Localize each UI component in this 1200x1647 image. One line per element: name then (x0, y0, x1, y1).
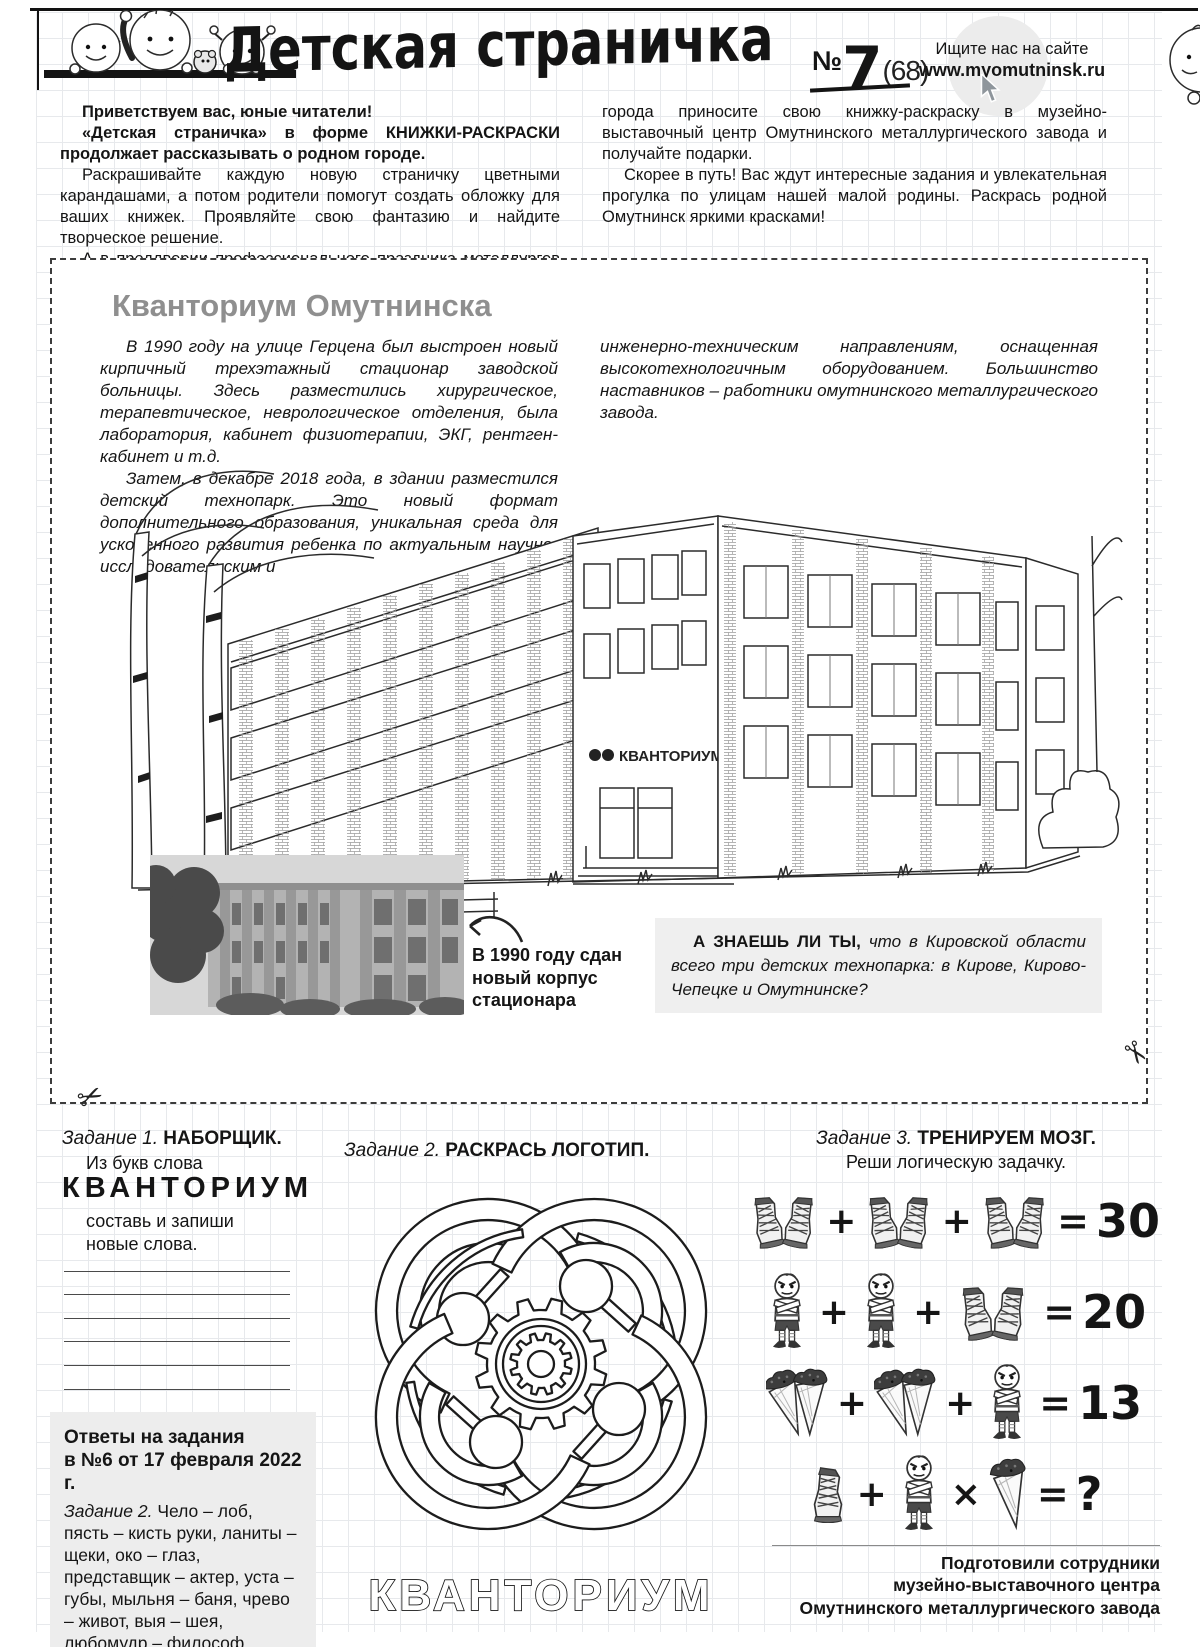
sneaker-icon (806, 1465, 850, 1523)
task1-intro1: Из букв слова (86, 1153, 203, 1174)
writing-line[interactable] (64, 1295, 290, 1319)
did-you-know-box: А ЗНАЕШЬ ЛИ ТЫ, что в Кировской области … (655, 918, 1102, 1013)
logic-puzzle: ++=30++=20++=13+×=? (748, 1180, 1160, 1535)
seed-cones-icon (874, 1361, 938, 1445)
intro-paragraph: «Детская страничка» в форме КНИЖКИ-РАСКР… (60, 123, 560, 165)
issue-prefix: № (812, 46, 842, 76)
writing-line[interactable] (64, 1319, 290, 1343)
writing-line[interactable] (64, 1272, 290, 1296)
puzzle-row-2: ++=20 (748, 1271, 1160, 1353)
equals-sign: = (1039, 1381, 1071, 1425)
intro-paragraph: Приветствуем вас, юные читатели! (60, 102, 560, 123)
site-hint: Ищите нас на сайте (912, 40, 1112, 60)
operator: + (826, 1201, 856, 1242)
site-block: Ищите нас на сайте www.myomutninsk.ru (912, 40, 1112, 81)
issue-number: №7(68) (812, 34, 928, 102)
photo-caption: В 1990 году сдан новый корпус стационара (472, 944, 632, 1012)
operator: + (942, 1201, 972, 1242)
task3-name: ТРЕНИРУЕМ МОЗГ. (917, 1128, 1096, 1149)
site-url[interactable]: www.myomutninsk.ru (912, 60, 1112, 82)
quantorium-logo-word: КВАНТОРИУМ (336, 1566, 746, 1626)
equals-sign: = (1037, 1472, 1069, 1516)
task2-heading: Задание 2. РАСКРАСЬ ЛОГОТИП. (344, 1140, 649, 1162)
sneakers-pair-icon (979, 1191, 1050, 1251)
sneakers-pair-icon (748, 1191, 819, 1251)
newspaper-kids-page: Детская страничка №7(68) Ищите нас на са… (0, 0, 1200, 1647)
task3-heading: Задание 3. ТРЕНИРУЕМ МОЗГ. (752, 1128, 1160, 1150)
quantorium-logo-coloring[interactable] (338, 1164, 744, 1564)
credits-line: Омутнинского металлургического завода (700, 1597, 1160, 1619)
writing-line[interactable] (64, 1390, 290, 1414)
writing-line[interactable] (64, 1366, 290, 1390)
writing-line[interactable] (64, 1342, 290, 1366)
mouse-cursor-icon (980, 74, 1004, 104)
seed-cones-icon (766, 1361, 830, 1445)
operator: + (837, 1383, 867, 1424)
article-paragraph: инженерно-техническим направлениям, осна… (600, 336, 1098, 424)
task1-heading: Задание 1. НАБОРЩИК. (62, 1128, 282, 1150)
credits-line: Подготовили сотрудники (700, 1552, 1160, 1574)
article-title: Кванториум Омутнинска (112, 288, 492, 324)
intro-paragraph: Раскрашивайте каждую новую страничку цве… (60, 165, 560, 249)
boy-icon (856, 1272, 906, 1352)
credits-line: музейно-выставочного центра (700, 1574, 1160, 1596)
puzzle-result: 30 (1096, 1194, 1160, 1248)
credits: Подготовили сотрудники музейно-выставочн… (700, 1552, 1160, 1619)
puzzle-row-3: ++=13 (748, 1362, 1160, 1444)
answers-title-line2: в №6 от 17 февраля 2022 г. (64, 1449, 302, 1495)
answers-box: Ответы на задания в №6 от 17 февраля 202… (50, 1412, 316, 1647)
puzzle-result: ? (1076, 1467, 1103, 1521)
boy-icon (894, 1454, 944, 1534)
logo-word-text: КВАНТОРИУМ (369, 1571, 714, 1620)
boy-icon (982, 1363, 1032, 1443)
hospital-photo (150, 855, 464, 1015)
article-column-2: инженерно-техническим направлениям, осна… (600, 336, 1098, 424)
intro-paragraph: Скорее в путь! Вас ждут интересные задан… (602, 165, 1107, 228)
answers-text: Чело – лоб, пясть – кисть руки, ланиты –… (64, 1501, 296, 1647)
operator: + (913, 1292, 943, 1333)
task3-subtitle: Реши логическую задачку. (752, 1152, 1160, 1173)
intro-column-2: города приносите свою книжку-раскраску в… (602, 102, 1107, 228)
sneakers-pair-icon (950, 1282, 1036, 1342)
page-title: Детская страничка (224, 2, 774, 87)
sneakers-pair-icon (863, 1191, 934, 1251)
intro-paragraph: города приносите свою книжку-раскраску в… (602, 102, 1107, 165)
equals-sign: = (1043, 1290, 1075, 1334)
task2-name: РАСКРАСЬ ЛОГОТИП. (445, 1140, 649, 1161)
boy-icon (762, 1272, 812, 1352)
puzzle-result: 13 (1078, 1376, 1142, 1430)
baby-face-illustration (1156, 20, 1200, 106)
page-left-border (37, 8, 39, 90)
issue-num: 7 (842, 34, 882, 102)
puzzle-result: 20 (1082, 1285, 1146, 1339)
writing-line[interactable] (64, 1248, 290, 1272)
operator: + (945, 1383, 975, 1424)
task1-label: Задание 1. (62, 1128, 158, 1149)
writing-lines[interactable] (64, 1248, 290, 1437)
footer-rule (772, 1545, 1160, 1546)
operator: × (951, 1474, 981, 1515)
seed-cone-icon (988, 1456, 1030, 1532)
answers-title-line1: Ответы на задания (64, 1426, 302, 1449)
equals-sign: = (1057, 1199, 1089, 1243)
task1-name: НАБОРЩИК. (163, 1128, 281, 1149)
task1-word: КВАНТОРИУМ (62, 1172, 313, 1205)
puzzle-row-1: ++=30 (748, 1180, 1160, 1262)
task2-label: Задание 2. (344, 1140, 440, 1161)
operator: + (819, 1292, 849, 1333)
puzzle-row-4: +×=? (748, 1453, 1160, 1535)
building-sign-text: КВАНТОРИУМ (619, 748, 723, 765)
answers-task-label: Задание 2. (64, 1501, 152, 1521)
coloring-page-box: Кванториум Омутнинска В 1990 году на ули… (50, 258, 1148, 1104)
task3-label: Задание 3. (816, 1128, 912, 1149)
fact-lead: А ЗНАЕШЬ ЛИ ТЫ, (693, 932, 861, 951)
operator: + (857, 1474, 887, 1515)
